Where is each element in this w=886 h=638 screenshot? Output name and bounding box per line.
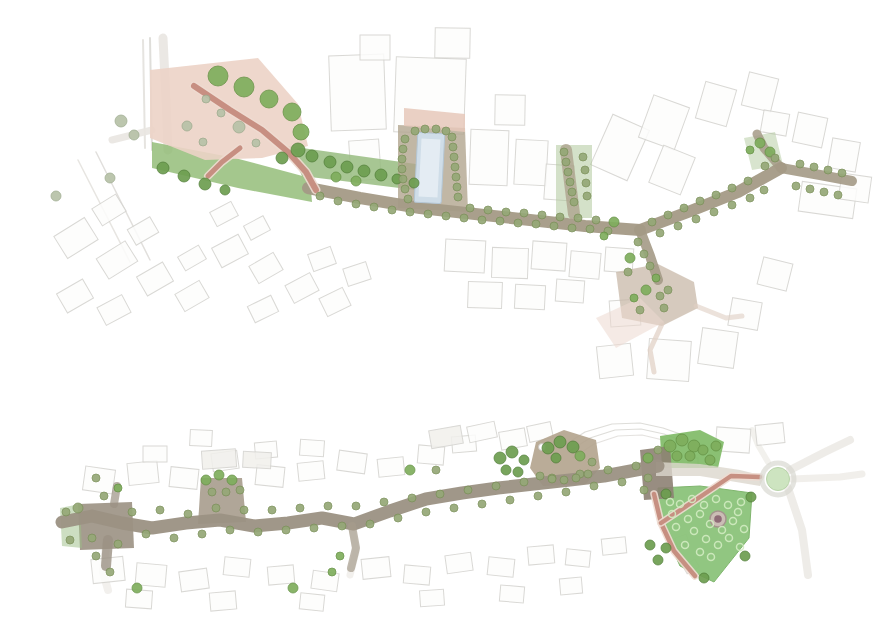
tree (208, 66, 228, 86)
tree (644, 474, 652, 482)
tree (680, 204, 688, 212)
tree (222, 488, 230, 496)
tree (328, 568, 336, 576)
building-footprint (209, 591, 236, 611)
tree (728, 184, 736, 192)
tree (92, 552, 100, 560)
building-footprint (757, 257, 793, 291)
tree (240, 506, 248, 514)
tree (436, 490, 444, 498)
building-footprint (299, 593, 325, 611)
tree (178, 170, 190, 182)
tree (401, 135, 409, 143)
tree (406, 208, 414, 216)
tree (254, 528, 262, 536)
tree (824, 166, 832, 174)
tree (685, 451, 695, 461)
tree (450, 153, 458, 161)
tree (233, 121, 245, 133)
tree (370, 203, 378, 211)
tree (698, 445, 708, 455)
building-footprint (361, 557, 391, 580)
tree (411, 127, 419, 135)
building-footprint (243, 451, 272, 468)
tree (502, 208, 510, 216)
faint-road (788, 488, 808, 575)
south-lane (106, 540, 108, 566)
tree (316, 192, 324, 200)
tree (600, 232, 608, 240)
tree (296, 504, 304, 512)
tree (453, 183, 461, 191)
masterplan-page (0, 0, 886, 638)
water-highlight (418, 139, 440, 198)
tree (432, 125, 440, 133)
tree (202, 95, 210, 103)
tree (728, 201, 736, 209)
tree (115, 115, 127, 127)
tree (201, 475, 211, 485)
tree (771, 154, 779, 162)
tree (641, 285, 651, 295)
tree (632, 462, 640, 470)
tree (664, 286, 672, 294)
building-footprint (169, 467, 199, 490)
tree (566, 178, 574, 186)
tree (661, 489, 671, 499)
building-footprint (329, 54, 387, 131)
tree (792, 182, 800, 190)
building-footprint (360, 35, 390, 60)
building-footprint (741, 72, 778, 112)
tree (796, 160, 804, 168)
tree (656, 229, 664, 237)
tree (672, 451, 682, 461)
building-footprint (419, 589, 444, 607)
tree (106, 568, 114, 576)
tree (358, 165, 370, 177)
park-monument (714, 515, 722, 523)
building-footprint (601, 537, 627, 555)
tree (170, 534, 178, 542)
tree (810, 163, 818, 171)
tree (640, 250, 648, 258)
building-footprint (435, 28, 471, 59)
building-footprint (319, 287, 351, 316)
building-footprint (212, 234, 249, 268)
tree (556, 213, 564, 221)
building-footprint (499, 585, 524, 603)
tree (562, 488, 570, 496)
roundabout (767, 468, 790, 491)
tree (661, 543, 671, 553)
building-footprint (649, 145, 696, 195)
tree (755, 138, 765, 148)
tree (252, 139, 260, 147)
tree (645, 540, 655, 550)
building-footprint (143, 446, 167, 462)
building-footprint (596, 343, 633, 378)
building-footprint (417, 445, 444, 465)
tree (568, 188, 576, 196)
tree (88, 534, 96, 542)
building-footprint (337, 450, 368, 474)
tree (534, 492, 542, 500)
tree (551, 453, 561, 463)
tree (674, 222, 682, 230)
tree (506, 496, 514, 504)
tree (609, 217, 619, 227)
tree (380, 498, 388, 506)
tree (331, 172, 341, 182)
tree (575, 451, 585, 461)
tree (217, 109, 225, 117)
tree (548, 475, 556, 483)
tree (740, 551, 750, 561)
tree (834, 191, 842, 199)
building-footprint (792, 112, 828, 148)
building-footprint (308, 246, 337, 271)
tree (820, 188, 828, 196)
tree (513, 467, 523, 477)
tree (570, 198, 578, 206)
building-footprint (285, 273, 319, 304)
tree (506, 446, 518, 458)
building-footprint (514, 139, 548, 186)
tree (324, 156, 336, 168)
tree (234, 77, 254, 97)
tree (699, 573, 709, 583)
tree (399, 145, 407, 153)
tree (568, 224, 576, 232)
tree (542, 442, 554, 454)
tree (208, 488, 216, 496)
building-footprint (299, 439, 324, 457)
tree (375, 169, 387, 181)
tree (676, 434, 688, 446)
tree (421, 125, 429, 133)
tree (625, 253, 635, 263)
tree (586, 225, 594, 233)
tree (618, 478, 626, 486)
masterplan-canvas (0, 0, 886, 638)
building-footprint (175, 280, 209, 311)
building-footprint (487, 557, 515, 578)
tree (100, 492, 108, 500)
building-footprint (728, 298, 762, 331)
tree (448, 133, 456, 141)
tree (432, 466, 440, 474)
tree (588, 458, 596, 466)
tree (656, 292, 664, 300)
building-footprint (377, 457, 405, 478)
tree (648, 218, 656, 226)
building-footprint (755, 423, 785, 446)
tree (226, 526, 234, 534)
tree (574, 214, 582, 222)
building-footprint (247, 295, 278, 323)
tree (452, 173, 460, 181)
tree (352, 200, 360, 208)
building-footprint (531, 241, 567, 271)
tree (538, 211, 546, 219)
building-footprint (137, 262, 174, 296)
tree (227, 475, 237, 485)
tree (636, 306, 644, 314)
tree (341, 161, 353, 173)
building-footprint (495, 95, 526, 126)
tree (536, 472, 544, 480)
building-footprint (638, 95, 689, 150)
tree (583, 192, 591, 200)
building-footprint (57, 279, 94, 313)
tree (184, 510, 192, 518)
tree (562, 158, 570, 166)
tree (336, 552, 344, 560)
tree (408, 494, 416, 502)
tree (442, 212, 450, 220)
building-footprint (210, 201, 239, 226)
tree (454, 193, 462, 201)
tree (288, 583, 298, 593)
building-footprint (467, 421, 498, 442)
tree (514, 219, 522, 227)
tree (128, 508, 136, 516)
tree (640, 486, 648, 494)
tree (646, 262, 654, 270)
tree (199, 178, 211, 190)
tree (398, 155, 406, 163)
tree (560, 476, 568, 484)
tree (114, 484, 122, 492)
tree (220, 185, 230, 195)
building-footprint (267, 565, 294, 585)
tree (478, 216, 486, 224)
tree (422, 508, 430, 516)
tree (324, 502, 332, 510)
building-footprint (468, 281, 503, 308)
faint-road (792, 474, 862, 479)
tree (388, 206, 396, 214)
tree (199, 138, 207, 146)
tree (760, 186, 768, 194)
tree (451, 163, 459, 171)
building-footprint (555, 279, 584, 303)
tree (590, 482, 598, 490)
building-footprint (178, 245, 207, 271)
building-footprint (127, 217, 159, 246)
tree (664, 211, 672, 219)
tree (212, 504, 220, 512)
tree (62, 508, 70, 516)
tree (236, 486, 244, 494)
tree (494, 452, 506, 464)
tree (142, 530, 150, 538)
building-footprint (698, 328, 739, 369)
tree (520, 478, 528, 486)
tree (496, 217, 504, 225)
tree (366, 520, 374, 528)
tree (519, 455, 529, 465)
building-footprint (54, 217, 98, 258)
tree (73, 503, 83, 513)
tree (630, 294, 638, 302)
tree (664, 440, 676, 452)
tree (660, 304, 668, 312)
tree (283, 103, 301, 121)
building-footprint (569, 251, 601, 280)
building-footprint (249, 252, 283, 283)
tree (460, 214, 468, 222)
building-footprint (695, 81, 736, 126)
tree (276, 152, 288, 164)
building-footprint (469, 129, 509, 185)
tree (450, 504, 458, 512)
tree (692, 215, 700, 223)
tree (624, 268, 632, 276)
tree (306, 150, 318, 162)
tree (584, 470, 592, 478)
tree (746, 492, 756, 502)
building-footprint (591, 114, 650, 181)
tree (653, 555, 663, 565)
tree (132, 583, 142, 593)
tree (398, 165, 406, 173)
building-footprint (96, 241, 138, 279)
tree (466, 204, 474, 212)
tree (282, 526, 290, 534)
tree (711, 441, 721, 451)
faint-road (790, 440, 850, 470)
building-footprint (179, 568, 210, 592)
tree (214, 470, 224, 480)
tree (484, 206, 492, 214)
tree (712, 191, 720, 199)
building-footprint (244, 216, 271, 240)
tree (492, 482, 500, 490)
tree (405, 465, 415, 475)
tree (156, 506, 164, 514)
tree (268, 506, 276, 514)
tree (592, 216, 600, 224)
tree (520, 209, 528, 217)
tree (564, 168, 572, 176)
tree (182, 121, 192, 131)
tree (293, 124, 309, 140)
tree (442, 127, 450, 135)
building-footprint (444, 239, 486, 273)
tree (129, 130, 139, 140)
tree (572, 474, 580, 482)
building-footprint (190, 429, 213, 446)
tree (806, 185, 814, 193)
tree (761, 162, 769, 170)
tree (291, 143, 305, 157)
tree (696, 197, 704, 205)
building-footprint (201, 449, 236, 469)
building-footprint (127, 460, 159, 485)
tree (744, 177, 752, 185)
tree (114, 540, 122, 548)
tree (310, 524, 318, 532)
tree (532, 220, 540, 228)
tree (424, 210, 432, 218)
tree (92, 474, 100, 482)
building-footprint (527, 545, 554, 565)
building-footprint (343, 262, 371, 287)
tree (554, 436, 566, 448)
tree (652, 274, 660, 282)
upper-masterplan-sheet (51, 28, 872, 382)
tree (157, 162, 169, 174)
tree (710, 208, 718, 216)
tree (604, 466, 612, 474)
tree (409, 178, 419, 188)
tree (338, 522, 346, 530)
tree (51, 191, 61, 201)
tree (260, 90, 278, 108)
building-footprint (514, 284, 545, 310)
building-footprint (565, 549, 591, 567)
tree (464, 486, 472, 494)
building-footprint (445, 552, 473, 573)
tree (351, 176, 361, 186)
tree (334, 197, 342, 205)
tree (394, 514, 402, 522)
building-footprint (97, 295, 131, 326)
building-footprint (223, 557, 251, 578)
tree (352, 502, 360, 510)
lower-masterplan-sheet (60, 421, 862, 611)
building-footprint (559, 577, 582, 595)
tree (746, 146, 754, 154)
tree (654, 446, 662, 454)
tree (560, 148, 568, 156)
tree (838, 169, 846, 177)
tree (198, 530, 206, 538)
tree (66, 536, 74, 544)
building-footprint (297, 461, 325, 482)
tree (643, 453, 653, 463)
tree (401, 185, 409, 193)
tree (705, 455, 715, 465)
tree (478, 500, 486, 508)
tree (579, 153, 587, 161)
tree (746, 194, 754, 202)
building-footprint (491, 247, 528, 278)
tree (404, 195, 412, 203)
tree (582, 179, 590, 187)
tree (634, 238, 642, 246)
tree (501, 465, 511, 475)
building-footprint (403, 565, 430, 585)
tree (399, 175, 407, 183)
tree (449, 143, 457, 151)
tree (567, 441, 579, 453)
tree (550, 222, 558, 230)
building-footprint (828, 138, 861, 172)
tree (105, 173, 115, 183)
tree (581, 166, 589, 174)
